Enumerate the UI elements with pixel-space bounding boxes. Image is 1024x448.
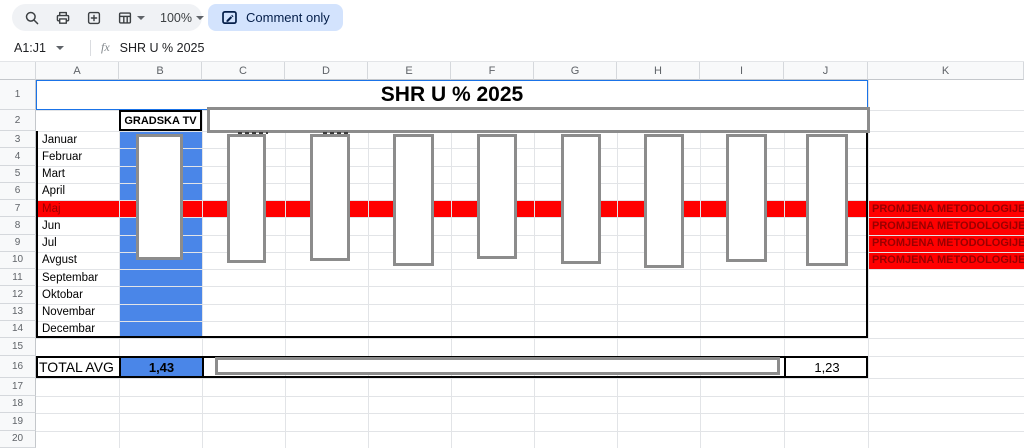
gridline bbox=[36, 183, 1024, 184]
row-header-3[interactable]: 3 bbox=[0, 131, 36, 148]
clipped-text-fragment bbox=[323, 132, 350, 135]
gridline bbox=[617, 110, 618, 448]
chevron-down-icon bbox=[56, 46, 64, 50]
row-header-16[interactable]: 16 bbox=[0, 356, 36, 378]
gridline bbox=[36, 378, 1024, 379]
formula-bar: A1:J1 fx SHR U % 2025 bbox=[0, 34, 1024, 62]
annotation-cell-k7[interactable]: PROMJENA METODOLOGIJE bbox=[868, 200, 1024, 217]
month-cell-novembar[interactable]: Novembar bbox=[38, 304, 118, 321]
column-header-G[interactable]: G bbox=[534, 62, 617, 80]
gridline bbox=[119, 110, 120, 448]
annotation-cell-k8[interactable]: PROMJENA METODOLOGIJE bbox=[868, 217, 1024, 234]
gridline bbox=[451, 110, 452, 448]
column-header-I[interactable]: I bbox=[700, 62, 784, 80]
month-cell-septembar[interactable]: Septembar bbox=[38, 269, 118, 286]
gridline bbox=[36, 148, 1024, 149]
row-header-2[interactable]: 2 bbox=[0, 110, 36, 131]
month-cell-decembar[interactable]: Decembar bbox=[38, 321, 118, 338]
print-icon[interactable] bbox=[55, 10, 71, 26]
column-header-J[interactable]: J bbox=[784, 62, 868, 80]
zoom-level-label: 100% bbox=[160, 11, 192, 25]
month-cell-januar[interactable]: Januar bbox=[38, 131, 118, 148]
mode-chip[interactable]: Comment only bbox=[208, 4, 343, 31]
total-row-divider bbox=[202, 356, 204, 378]
gridline bbox=[700, 110, 701, 448]
cell-b2-gradska-tv[interactable]: GRADSKA TV bbox=[119, 110, 202, 131]
gridline bbox=[36, 166, 1024, 167]
column-header-F[interactable]: F bbox=[451, 62, 534, 80]
gridline bbox=[36, 396, 1024, 397]
column-header-B[interactable]: B bbox=[119, 62, 202, 80]
row-header-8[interactable]: 8 bbox=[0, 217, 36, 234]
clipped-text-fragment bbox=[238, 132, 268, 135]
row-header-17[interactable]: 17 bbox=[0, 378, 36, 396]
table-options-icon[interactable] bbox=[117, 10, 145, 26]
redaction-box bbox=[561, 134, 601, 264]
total-b-value-cell[interactable]: 1,43 bbox=[121, 356, 202, 378]
month-cell-avgust[interactable]: Avgust bbox=[38, 252, 118, 269]
row-header-1[interactable]: 1 bbox=[0, 80, 36, 110]
gridline bbox=[368, 110, 369, 448]
row-header-5[interactable]: 5 bbox=[0, 166, 36, 183]
annotation-cell-k9[interactable]: PROMJENA METODOLOGIJE bbox=[868, 235, 1024, 252]
month-cell-oktobar[interactable]: Oktobar bbox=[38, 286, 118, 303]
total-label-cell[interactable]: TOTAL AVG bbox=[39, 356, 118, 378]
redaction-box bbox=[726, 134, 767, 262]
name-box[interactable]: A1:J1 bbox=[0, 41, 88, 55]
column-header-A[interactable]: A bbox=[36, 62, 119, 80]
gridline bbox=[202, 110, 203, 448]
month-cell-april[interactable]: April bbox=[38, 183, 118, 200]
spreadsheet-app: 100% Comment only A1:J1 fx SHR U % 2025 … bbox=[0, 0, 1024, 448]
row-header-12[interactable]: 12 bbox=[0, 286, 36, 303]
row-header-14[interactable]: 14 bbox=[0, 321, 36, 338]
quick-toolbar: 100% bbox=[12, 4, 202, 31]
month-cell-jun[interactable]: Jun bbox=[38, 217, 118, 234]
search-icon[interactable] bbox=[24, 10, 40, 26]
comment-mode-icon bbox=[221, 9, 238, 26]
row-header-15[interactable]: 15 bbox=[0, 338, 36, 356]
corner-box[interactable] bbox=[0, 62, 36, 80]
gridline bbox=[784, 110, 785, 448]
month-cell-mart[interactable]: Mart bbox=[38, 166, 118, 183]
fx-icon: fx bbox=[101, 40, 110, 55]
column-header-E[interactable]: E bbox=[368, 62, 451, 80]
sheet-grid: ABCDEFGHIJK12345678910111213141516171819… bbox=[0, 62, 1024, 448]
row-header-19[interactable]: 19 bbox=[0, 413, 36, 431]
redaction-box bbox=[310, 134, 350, 261]
gridline bbox=[36, 338, 1024, 339]
gridline bbox=[36, 286, 1024, 287]
redaction-box bbox=[393, 134, 434, 266]
row-header-18[interactable]: 18 bbox=[0, 396, 36, 414]
formula-input[interactable]: SHR U % 2025 bbox=[120, 41, 1024, 55]
row-header-11[interactable]: 11 bbox=[0, 269, 36, 286]
gridline bbox=[285, 110, 286, 448]
annotation-cell-k10[interactable]: PROMJENA METODOLOGIJE bbox=[868, 252, 1024, 269]
redaction-box bbox=[136, 134, 183, 260]
add-box-icon[interactable] bbox=[86, 10, 102, 26]
redaction-box bbox=[477, 134, 517, 259]
row-header-4[interactable]: 4 bbox=[0, 148, 36, 165]
redaction-box bbox=[644, 134, 684, 268]
month-cell-jul[interactable]: Jul bbox=[38, 235, 118, 252]
column-header-D[interactable]: D bbox=[285, 62, 368, 80]
zoom-select[interactable]: 100% bbox=[160, 11, 204, 25]
row-header-10[interactable]: 10 bbox=[0, 252, 36, 269]
row-header-13[interactable]: 13 bbox=[0, 304, 36, 321]
redaction-box bbox=[806, 134, 848, 266]
redaction-box bbox=[207, 107, 870, 133]
month-cell-februar[interactable]: Februar bbox=[38, 148, 118, 165]
title-cell[interactable]: SHR U % 2025 bbox=[36, 80, 868, 110]
gridline bbox=[36, 413, 1024, 414]
gridline bbox=[36, 321, 1024, 322]
gridline bbox=[36, 431, 1024, 432]
column-header-C[interactable]: C bbox=[202, 62, 285, 80]
name-box-value: A1:J1 bbox=[14, 41, 46, 55]
toolbar: 100% Comment only bbox=[0, 0, 1024, 34]
row-header-9[interactable]: 9 bbox=[0, 235, 36, 252]
redaction-box bbox=[215, 357, 780, 375]
gridline bbox=[36, 269, 1024, 270]
redaction-box bbox=[227, 134, 266, 263]
divider bbox=[90, 40, 91, 56]
row-header-6[interactable]: 6 bbox=[0, 183, 36, 200]
total-j-value-cell[interactable]: 1,23 bbox=[786, 356, 868, 378]
row-header-7[interactable]: 7 bbox=[0, 200, 36, 217]
column-header-H[interactable]: H bbox=[617, 62, 700, 80]
row-header-20[interactable]: 20 bbox=[0, 431, 36, 448]
month-cell-maj[interactable]: Maj bbox=[38, 200, 118, 217]
mode-chip-label: Comment only bbox=[246, 10, 330, 25]
chevron-down-icon bbox=[137, 16, 145, 20]
gridline bbox=[534, 110, 535, 448]
chevron-down-icon bbox=[196, 16, 204, 20]
gridline bbox=[36, 304, 1024, 305]
column-header-K[interactable]: K bbox=[868, 62, 1024, 80]
